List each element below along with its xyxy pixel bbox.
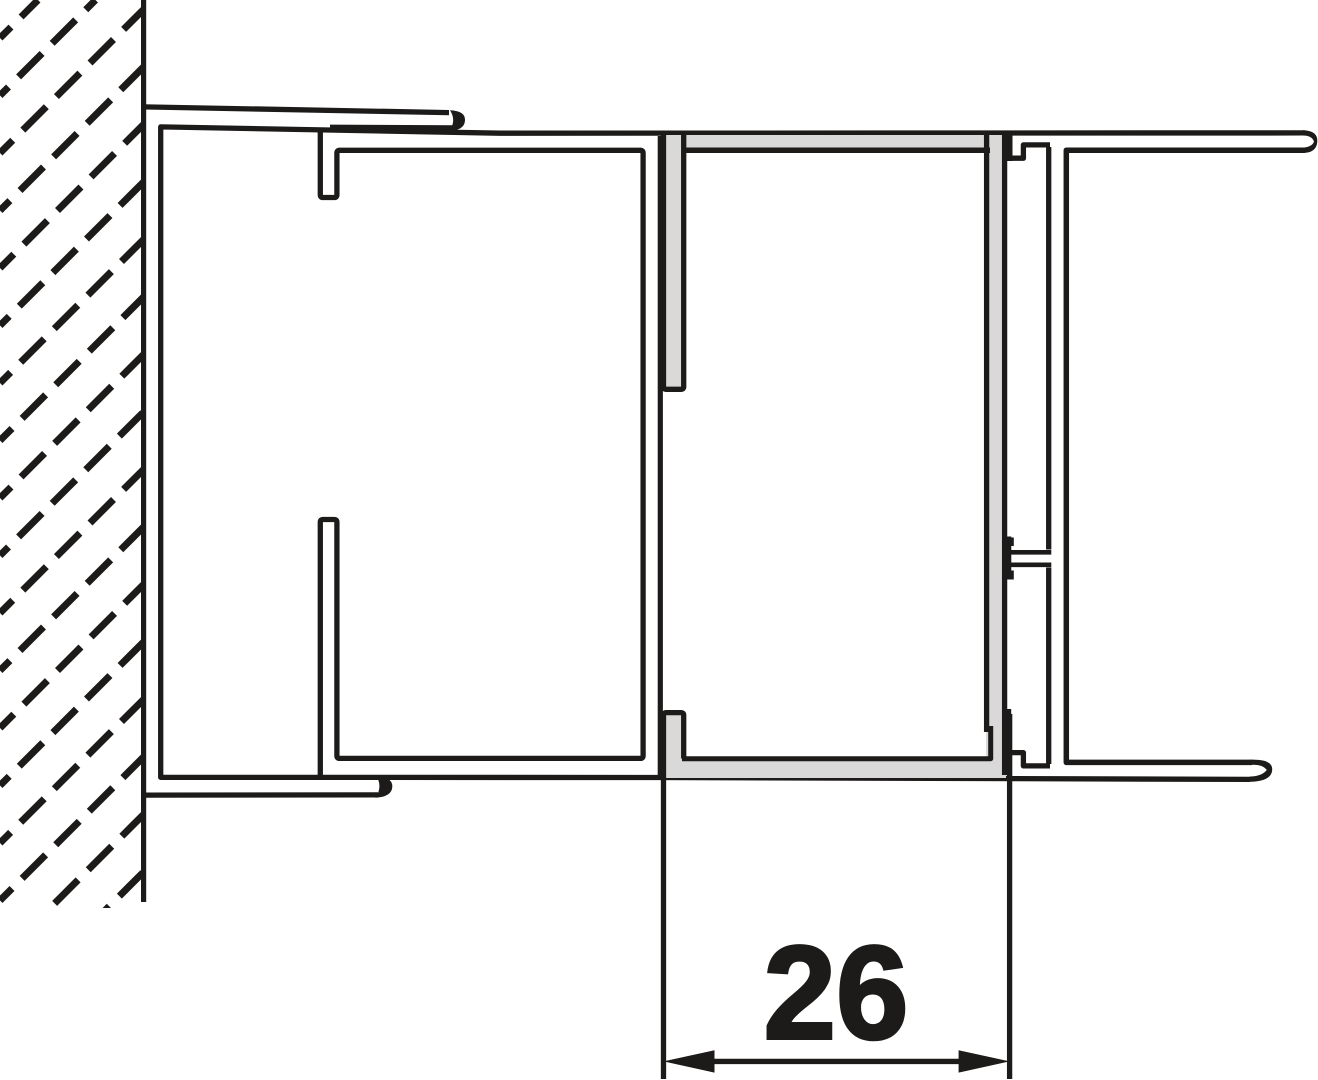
svg-text:26: 26 — [764, 920, 909, 1068]
